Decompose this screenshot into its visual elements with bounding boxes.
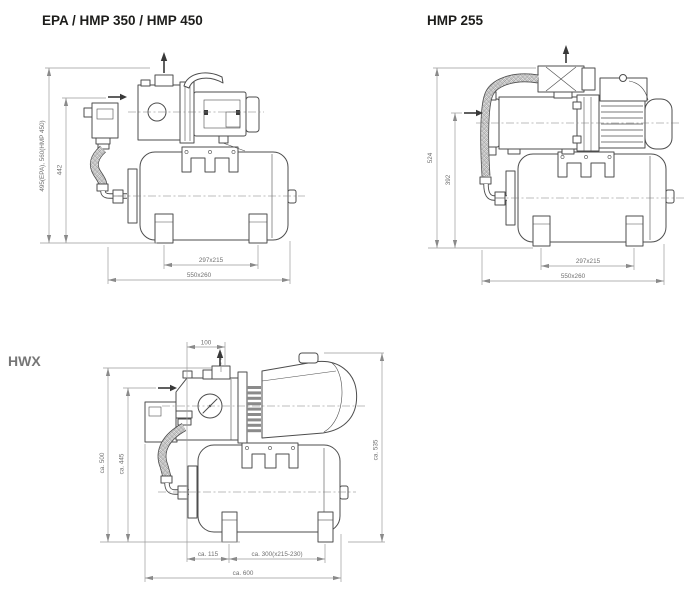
cable-gland — [84, 108, 92, 117]
dim-height-outer: 524 — [427, 152, 434, 163]
dim-feet: 297x215 — [576, 258, 601, 265]
dim-top: 100 — [201, 340, 212, 347]
page: EPA / HMP 350 / HMP 450 — [0, 0, 700, 608]
flow-arrow-up-icon — [563, 45, 569, 63]
technical-drawing: EPA / HMP 350 / HMP 450 — [0, 0, 700, 608]
flow-arrow-up-icon — [217, 349, 223, 366]
tank-foot — [249, 214, 267, 243]
dim-height-outer: ca. 500 — [99, 452, 106, 473]
pressure-tank — [506, 152, 674, 246]
diagram-hwx: HWX — [8, 340, 385, 583]
discharge-port — [155, 75, 173, 86]
motor-cowl — [262, 361, 357, 438]
tank-valve-cap — [666, 190, 674, 203]
dim-feet: ca. 300(x215-230) — [251, 551, 302, 558]
tank-foot — [155, 214, 173, 243]
diagram-title: HMP 255 — [427, 13, 484, 28]
dim-base: ca. 600 — [233, 570, 254, 577]
vent-slots — [247, 386, 261, 432]
tank-valve-cap — [288, 190, 296, 203]
pump-mounting-bracket — [242, 443, 298, 468]
flow-arrow-up-icon — [161, 52, 167, 73]
pressure-switch — [92, 103, 118, 138]
dim-height-outer: 495(EPA), 560(HMP 450) — [39, 120, 46, 191]
dim-height-inner: 442 — [57, 164, 64, 175]
diagram-title: EPA / HMP 350 / HMP 450 — [42, 13, 203, 28]
diagram-epa-hmp-350-450: EPA / HMP 350 / HMP 450 — [39, 13, 305, 284]
flow-arrow-in-icon — [108, 94, 127, 100]
diagram-title: HWX — [8, 353, 41, 369]
flow-arrow-in-icon — [158, 385, 177, 391]
tank-foot — [533, 216, 550, 246]
dim-feet: 297x215 — [199, 257, 224, 264]
dim-height-right: ca. 535 — [373, 439, 380, 460]
tee-fitting — [538, 66, 595, 92]
flexible-hose — [94, 149, 127, 203]
diagram-hmp-255: HMP 255 — [427, 13, 684, 285]
dim-base: 550x260 — [187, 272, 212, 279]
pump-mounting-bracket — [182, 147, 238, 172]
tank-valve-cap — [340, 486, 348, 499]
tank-foot — [626, 216, 643, 246]
pressure-tank — [188, 443, 348, 542]
tank-foot — [222, 512, 237, 542]
dim-height-inner: 392 — [445, 174, 452, 185]
carry-handle — [184, 73, 223, 88]
pump-mounting-bracket — [558, 152, 614, 177]
dim-foot-offset: ca. 115 — [198, 551, 219, 558]
flow-arrow-in-icon — [464, 110, 483, 116]
pressure-tank — [128, 147, 296, 243]
dim-height-inner: ca. 445 — [119, 453, 126, 474]
dim-base: 550x260 — [561, 273, 586, 280]
tank-foot — [318, 512, 333, 542]
